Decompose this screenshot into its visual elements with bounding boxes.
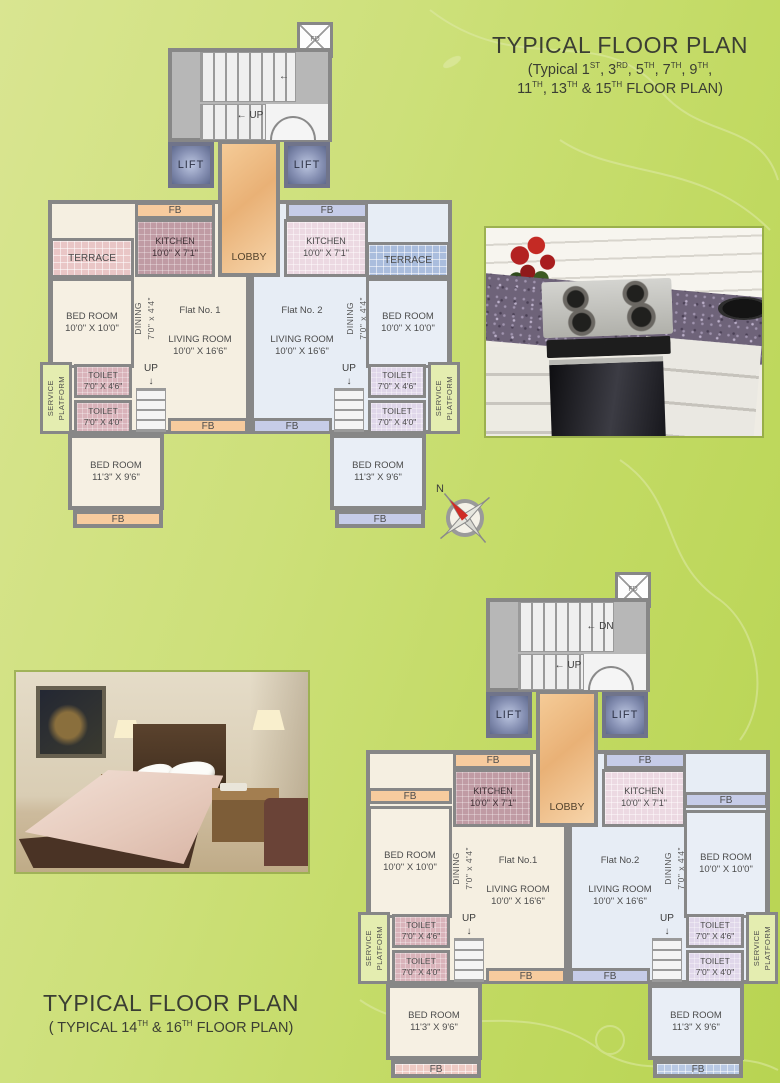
bedroom-flat2-front-label: BED ROOM [382,311,434,323]
flower-bed-bottom-1-label: FB [430,1063,443,1076]
kitchen-flat2-label: KITCHEN [624,786,664,798]
bedroom-flat2-front-label: 10'0" X 10'0" [381,323,435,335]
service-platform-flat2-label: PLATFORM [445,376,455,420]
terrace-flat1: TERRACE [50,238,134,278]
kitchen-flat2-label: 10'0" X 7'1" [621,798,667,810]
living-room-flat1-label: LIVING ROOM [486,884,549,896]
flower-bed-bottom-1: FB [391,1060,481,1078]
toilet-flat2-a: TOILET7'0" X 4'6" [686,914,744,948]
living-room-flat2-label: LIVING ROOM [270,334,333,346]
bedroom-flat2-front: BED ROOM10'0" X 10'0" [684,810,768,918]
terrace-flat1-label: TERRACE [68,252,116,265]
typical-floor-plan-upper: FD←← UPLIFTLIFTLOBBYFBFBKITCHEN10'0" X 7… [30,20,460,532]
dining-flat1-label: DINING [451,852,462,885]
flower-bed-bottom-2-label: FB [692,1063,705,1076]
living-room-flat1-label: Flat No. 1 [179,305,220,317]
toilet-flat2-b-label: TOILET [382,406,412,417]
stove-cooktop-burners [541,278,673,339]
living-room-flat2-label: 10'0" X 16'6" [593,896,647,908]
living-room-flat1-label: 10'0" X 16'6" [491,896,545,908]
flower-bed-kitchen-1-label: FB [169,204,182,217]
kitchen-flat2-label: 10'0" X 7'1" [303,248,349,260]
flower-bed-bottom-2-label: FB [374,513,387,526]
toilet-flat2-b-label: 7'0" X 4'0" [378,417,417,428]
flower-bed-bottom-2: FB [653,1060,743,1078]
living-room-flat2-label: Flat No.2 [601,855,640,867]
kitchen-photo [486,228,762,436]
toilet-flat1-a: TOILET7'0" X 4'6" [74,364,132,398]
kitchen-flat2-label: KITCHEN [306,236,346,248]
fire-duct-label: FD [628,585,637,594]
lift-right: LIFT [284,142,330,188]
bedroom-flat1-rear: BED ROOM11'3" X 9'6" [386,984,482,1060]
lobby: LOBBY [536,690,598,827]
framed-picture [36,686,105,758]
internal-stair-flat1 [136,388,166,432]
internal-stair-label-flat2-label: ↓ [347,375,352,388]
stair-dn-label-label: ← DN [586,620,613,633]
flower-bed-kitchen-2: FB [604,752,686,769]
service-platform-flat2-label: PLATFORM [763,926,773,970]
internal-stair-label-flat2-label: UP [342,362,356,375]
bedroom-flat1-rear-label: 11'3" X 9'6" [92,472,140,484]
kitchen-flat1: KITCHEN10'0" X 7'1" [135,219,215,277]
oven-door [549,356,666,436]
living-room-flat1-label: Flat No.1 [499,855,538,867]
flower-bed-mid-1-label: FB [202,420,215,433]
dining-flat2-label: 7'0" x 4'4" [358,297,369,340]
kitchen-flat1-label: KITCHEN [473,786,513,798]
bedroom-flat2-front-label: BED ROOM [700,852,752,864]
flower-bed-kitchen-2-label: FB [639,754,652,767]
toilet-flat1-b-label: TOILET [88,406,118,417]
lobby: LOBBY [218,140,280,277]
lower-title: TYPICAL FLOOR PLAN [22,990,320,1017]
internal-stair-label-flat2-label: UP [660,912,674,925]
bedroom-flat2-rear-label: 11'3" X 9'6" [672,1022,720,1034]
upper-title-block: TYPICAL FLOOR PLAN (Typical 1ST, 3RD, 5T… [470,32,770,97]
lift-right-label: LIFT [294,158,321,172]
toilet-flat1-a-label: TOILET [88,370,118,381]
dining-flat1-label: DINING [133,302,144,335]
internal-stair-label-flat1: UP↓ [134,364,168,386]
chair [264,798,308,866]
internal-stair-label-flat1-label: UP [462,912,476,925]
bedroom-flat1-rear-label: 11'3" X 9'6" [410,1022,458,1034]
service-platform-flat2-label: SERVICE [752,930,762,966]
flower-bed-mid-2-label: FB [604,970,617,983]
bedroom-flat1-rear-label: BED ROOM [90,460,142,472]
frying-pan [718,297,762,320]
flower-bed-mid-1-label: FB [520,970,533,983]
internal-stair-label-flat2: UP↓ [332,364,366,386]
lobby-label: LOBBY [549,801,584,815]
stair-up-label-label: ← UP [237,109,264,122]
flower-bed-bedroom-2-label: FB [720,794,733,807]
internal-stair-label-flat1-label: ↓ [467,925,472,938]
stair-arrow-upper-label: ← [279,70,289,83]
internal-stair-flat1 [454,938,484,982]
bedroom-flat1-rear-label: BED ROOM [408,1010,460,1022]
lobby-label: LOBBY [231,251,266,265]
lift-left-label: LIFT [496,708,523,722]
toilet-flat1-a-label: 7'0" X 4'6" [402,931,441,942]
toilet-flat1-a: TOILET7'0" X 4'6" [392,914,450,948]
stair-up-label-label: ← UP [555,659,582,672]
typical-floor-plan-lower: FD← DN← UPLIFTLIFTLOBBYFBFBKITCHEN10'0" … [348,570,778,1082]
toilet-flat1-b: TOILET7'0" X 4'0" [74,400,132,434]
bedroom-flat2-rear: BED ROOM11'3" X 9'6" [648,984,744,1060]
kitchen-flat1-label: KITCHEN [155,236,195,248]
flower-bed-bedroom-2: FB [684,792,768,808]
bedroom-flat2-rear-label: BED ROOM [670,1010,722,1022]
lift-right: LIFT [602,692,648,738]
internal-stair-label-flat1: UP↓ [452,914,486,936]
flower-bed-mid-1: FB [486,968,566,984]
flower-bed-bottom-1-label: FB [112,513,125,526]
internal-stair-label-flat1-label: UP [144,362,158,375]
flower-bed-mid-2: FB [570,968,650,984]
internal-stair-flat2 [334,388,364,432]
stair-dn-label: ← DN [574,618,626,634]
internal-stair-label-flat2: UP↓ [650,914,684,936]
wall-lamp-right [253,710,285,730]
toilet-flat1-b: TOILET7'0" X 4'0" [392,950,450,984]
flower-bed-mid-2: FB [252,418,332,434]
bedroom-flat2-rear: BED ROOM11'3" X 9'6" [330,434,426,510]
brochure-page: TYPICAL FLOOR PLAN (Typical 1ST, 3RD, 5T… [0,0,780,1083]
flower-bed-bedroom-1-label: FB [404,790,417,803]
flower-bed-mid-2-label: FB [286,420,299,433]
living-room-flat1-label: 10'0" X 16'6" [173,346,227,358]
kitchen-flat1-label: 10'0" X 7'1" [152,248,198,260]
bedroom-flat1-front-label: BED ROOM [66,311,118,323]
flower-bed-bottom-1: FB [73,510,163,528]
bedroom-flat2-rear-label: 11'3" X 9'6" [354,472,402,484]
toilet-flat1-b-label: 7'0" X 4'0" [402,967,441,978]
toilet-flat1-a-label: TOILET [406,920,436,931]
flower-bed-mid-1: FB [168,418,248,434]
bedroom-photo [16,672,308,872]
flower-bed-bedroom-1: FB [368,788,452,804]
bedroom-flat2-front-label: 10'0" X 10'0" [699,864,753,876]
stair-up-label: ← UP [226,108,274,122]
toilet-flat2-a-label: TOILET [382,370,412,381]
upper-subtitle-line2: 11TH, 13TH & 15TH FLOOR PLAN) [470,80,770,97]
service-platform-flat1-label: PLATFORM [57,376,67,420]
service-platform-flat1-label: PLATFORM [375,926,385,970]
toilet-flat2-a-label: TOILET [700,920,730,931]
toilet-flat1-a-label: 7'0" X 4'6" [84,381,123,392]
toilet-flat2-b-label: TOILET [700,956,730,967]
lower-title-block: TYPICAL FLOOR PLAN ( TYPICAL 14TH & 16TH… [22,990,320,1036]
internal-stair-label-flat2-label: ↓ [665,925,670,938]
fire-duct-label: FD [310,35,319,44]
lift-right-label: LIFT [612,708,639,722]
living-room-flat2-label: 10'0" X 16'6" [275,346,329,358]
service-platform-flat1-label: SERVICE [46,380,56,416]
kitchen-flat2: KITCHEN10'0" X 7'1" [284,219,368,277]
stove-knobs [546,336,671,359]
kitchen-flat2: KITCHEN10'0" X 7'1" [602,769,686,827]
service-platform-flat2: SERVICEPLATFORM [428,362,460,434]
toilet-flat2-a-label: 7'0" X 4'6" [696,931,735,942]
compass-rose: N [428,478,502,552]
stair-arrow-upper: ← [264,68,304,84]
kitchen-flat1: KITCHEN10'0" X 7'1" [453,769,533,827]
living-room-flat2-label: LIVING ROOM [588,884,651,896]
upper-title: TYPICAL FLOOR PLAN [470,32,770,59]
kitchen-flat1-label: 10'0" X 7'1" [470,798,516,810]
flower-bed-kitchen-2: FB [286,202,368,219]
toilet-flat2-b-label: 7'0" X 4'0" [696,967,735,978]
lift-left: LIFT [168,142,214,188]
flower-bed-kitchen-1-label: FB [487,754,500,767]
dining-flat2-label: 7'0" x 4'4" [676,847,687,890]
service-platform-flat2: SERVICEPLATFORM [746,912,778,984]
lower-subtitle: ( TYPICAL 14TH & 16TH FLOOR PLAN) [22,1019,320,1036]
service-platform-flat1: SERVICEPLATFORM [358,912,390,984]
bedroom-flat1-front-label: 10'0" X 10'0" [65,323,119,335]
telephone [220,783,246,791]
internal-stair-flat2 [652,938,682,982]
bedroom-flat2-rear-label: BED ROOM [352,460,404,472]
service-platform-flat2-label: SERVICE [434,380,444,416]
bedroom-flat1-front-label: BED ROOM [384,850,436,862]
compass-north-label: N [436,483,444,495]
toilet-flat2-a: TOILET7'0" X 4'6" [368,364,426,398]
toilet-flat2-a-label: 7'0" X 4'6" [378,381,417,392]
bedroom-flat2-front: BED ROOM10'0" X 10'0" [366,278,450,368]
flower-bed-kitchen-1: FB [453,752,533,769]
flower-bed-kitchen-2-label: FB [321,204,334,217]
bedroom-flat1-front-label: 10'0" X 10'0" [383,862,437,874]
internal-stair-label-flat1-label: ↓ [149,375,154,388]
toilet-flat2-b: TOILET7'0" X 4'0" [686,950,744,984]
bedroom-flat1-rear: BED ROOM11'3" X 9'6" [68,434,164,510]
terrace-flat2: TERRACE [366,242,450,278]
service-platform-flat1: SERVICEPLATFORM [40,362,72,434]
flower-bed-bottom-2: FB [335,510,425,528]
bedroom-flat1-front: BED ROOM10'0" X 10'0" [50,278,134,368]
terrace-flat2-label: TERRACE [384,254,432,267]
lift-left-label: LIFT [178,158,205,172]
toilet-flat2-b: TOILET7'0" X 4'0" [368,400,426,434]
living-room-flat2-label: Flat No. 2 [281,305,322,317]
upper-subtitle-line1: (Typical 1ST, 3RD, 5TH, 7TH, 9TH, [470,61,770,78]
bedroom-flat1-front: BED ROOM10'0" X 10'0" [368,806,452,918]
service-platform-flat1-label: SERVICE [364,930,374,966]
toilet-flat1-b-label: TOILET [406,956,436,967]
gas-stove [541,278,676,436]
lift-left: LIFT [486,692,532,738]
stair-up-label: ← UP [544,658,592,672]
living-room-flat1-label: LIVING ROOM [168,334,231,346]
toilet-flat1-b-label: 7'0" X 4'0" [84,417,123,428]
flower-bed-kitchen-1: FB [135,202,215,219]
